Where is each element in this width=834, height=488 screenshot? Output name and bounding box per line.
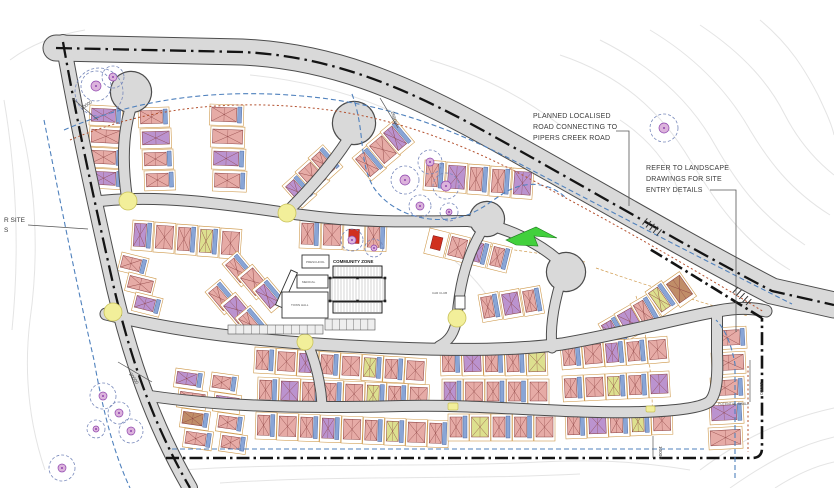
tree	[119, 419, 143, 443]
house-lot	[648, 371, 670, 398]
house-lot	[321, 221, 343, 250]
house-lot	[197, 226, 220, 257]
house-lot	[215, 412, 244, 435]
annotation-planned-road-line-1: PLANNED LOCALISED	[533, 113, 611, 120]
garage-slab	[272, 380, 277, 401]
tree-center-dot	[95, 85, 97, 87]
garage-slab	[313, 417, 318, 439]
house-lot	[708, 426, 743, 450]
site-plan: PLANNED LOCALISED ROAD CONNECTING TO PIP…	[0, 0, 834, 488]
tree-center-dot	[130, 430, 132, 432]
site-plan-map: PLANNED LOCALISED ROAD CONNECTING TO PIP…	[0, 0, 834, 488]
garage-slab	[506, 416, 510, 438]
column-dot	[329, 300, 332, 303]
traffic-calming-circle	[278, 204, 296, 222]
house-lot	[340, 353, 362, 380]
garage-slab	[520, 351, 525, 372]
house-lot	[489, 166, 512, 197]
crossing-tick	[733, 287, 738, 293]
house-lot	[131, 220, 154, 251]
garage-slab	[335, 418, 340, 440]
house-lot	[384, 418, 406, 446]
tree-center-dot	[429, 161, 431, 163]
left-edge-text-line-1: R SITE	[4, 217, 26, 224]
house-lot	[209, 372, 238, 395]
house-lot	[478, 292, 503, 323]
house-lot	[513, 414, 534, 441]
community-centre-main	[330, 278, 385, 301]
tree-center-dot	[61, 467, 63, 469]
garage-slab	[442, 423, 447, 445]
annotation-landscape-line-1: REFER TO LANDSCAPE	[646, 165, 729, 172]
tree	[49, 455, 75, 481]
traffic-calming-circle	[448, 309, 466, 327]
house-lot	[209, 104, 244, 126]
tree-center-dot	[419, 205, 421, 207]
house-lot	[361, 355, 383, 382]
house-lot	[277, 413, 299, 441]
tree-center-dot	[351, 239, 353, 241]
house-lot	[646, 336, 669, 364]
house-lot	[511, 168, 534, 199]
building-label-medical: MEDICAL	[302, 280, 316, 284]
tree-center-dot	[118, 412, 120, 414]
house-lot	[448, 414, 469, 441]
garage-slab	[169, 172, 174, 187]
annotation-planned-road: PLANNED LOCALISED ROAD CONNECTING TO PIP…	[533, 113, 618, 142]
tree	[650, 114, 678, 142]
contour-line	[20, 120, 45, 470]
garage-slab	[237, 107, 242, 123]
garage-slab	[378, 420, 383, 442]
dimension-10000-bottom: 10000	[658, 446, 663, 459]
tree-center-dot	[448, 211, 450, 213]
building-outline	[330, 278, 385, 301]
house-lot	[584, 374, 606, 401]
speed-cushion	[448, 403, 458, 410]
annotation-landscape-line-3: ENTRY DETAILS	[646, 187, 703, 194]
garage-slab	[398, 359, 403, 380]
speed-cushion	[646, 406, 655, 412]
tree-center-dot	[373, 247, 375, 249]
car-club-building	[455, 296, 465, 309]
garage-slab	[399, 421, 404, 443]
traffic-calming-circle	[104, 303, 122, 321]
tree-center-dot	[112, 76, 114, 78]
house-lot	[179, 408, 210, 431]
house-lot	[341, 416, 363, 444]
house-lot	[153, 222, 176, 253]
garage-slab	[740, 328, 745, 345]
contour-line	[4, 100, 16, 330]
contour-line	[700, 25, 834, 175]
contour-line	[760, 20, 834, 135]
culdesac-circle	[547, 253, 585, 291]
tree-center-dot	[445, 185, 447, 187]
garage-slab	[270, 415, 275, 437]
parking-strip	[325, 319, 375, 330]
house-lot	[605, 373, 627, 400]
house-lot	[625, 338, 648, 366]
house-lot	[275, 349, 297, 376]
garage-slab	[314, 223, 319, 246]
culdesac-circle	[333, 102, 375, 144]
house-lot	[467, 164, 490, 195]
garage-slab	[738, 378, 743, 395]
column-dot	[384, 300, 387, 303]
house-lot	[528, 379, 549, 405]
house-lot	[603, 339, 626, 367]
house-lot	[131, 292, 163, 317]
building-label-preschool: PRESCHOOL	[306, 260, 325, 264]
tree	[409, 195, 431, 217]
garage-slab	[269, 350, 274, 371]
building-label-town-hall: TOWN HALL	[291, 303, 309, 307]
house-lot	[520, 286, 545, 317]
house-lot	[491, 414, 512, 441]
annotation-left-edge: R SITE S	[4, 217, 26, 234]
house-lot	[254, 347, 276, 374]
garage-slab	[620, 375, 625, 396]
annotation-landscape-line-2: DRAWINGS FOR SITE	[646, 176, 722, 183]
tree-center-dot	[663, 127, 665, 129]
garage-slab	[463, 416, 467, 438]
house-lot	[363, 417, 385, 445]
leader-line	[28, 225, 88, 229]
house-lot	[144, 170, 176, 191]
house-lot	[298, 414, 320, 442]
garage-slab	[528, 416, 532, 438]
community-centre-wing	[333, 266, 382, 277]
house-lot	[406, 419, 428, 447]
tree	[81, 71, 111, 101]
dimension-10000-right: 10000	[759, 382, 764, 395]
house-lot	[173, 368, 204, 391]
garage-slab	[457, 381, 461, 402]
house-lot	[320, 415, 342, 443]
garage-slab	[500, 381, 504, 402]
map-layers	[4, 20, 834, 488]
house-lot	[210, 126, 245, 148]
house-lot	[212, 170, 247, 192]
house-lot	[299, 220, 321, 249]
house-lot	[175, 224, 198, 255]
house-lot	[211, 148, 246, 170]
house-lot	[427, 420, 449, 448]
tree-center-dot	[102, 395, 104, 397]
annotation-planned-road-line-2: ROAD CONNECTING TO	[533, 124, 618, 131]
garage-slab	[333, 354, 338, 375]
car-park	[228, 325, 323, 334]
garage-slab	[163, 109, 168, 124]
contour-line	[220, 474, 580, 483]
building-outline	[333, 266, 382, 277]
house-lot	[534, 414, 555, 441]
garage-slab	[577, 377, 582, 398]
column-dot	[356, 300, 359, 303]
house-lot	[499, 289, 524, 320]
house-lot	[404, 358, 426, 385]
house-lot	[487, 243, 513, 273]
house-lot	[627, 372, 649, 399]
contour-line	[180, 461, 690, 470]
community-centre-wing	[333, 302, 382, 313]
garage-slab	[380, 226, 385, 249]
tree	[108, 402, 130, 424]
annotation-planned-road-line-3: PIPERS CREEK ROAD	[533, 135, 610, 142]
tree	[391, 166, 419, 194]
culdesac-circle	[470, 202, 504, 236]
tree-center-dot	[95, 428, 97, 430]
tree	[87, 420, 105, 438]
house-lot	[383, 356, 405, 383]
contour-line	[775, 462, 834, 488]
garage-slab	[239, 151, 244, 167]
house-lot	[182, 428, 213, 451]
column-dot	[384, 277, 387, 280]
house-lot	[142, 149, 174, 170]
tree-center-dot	[404, 179, 406, 181]
house-lot	[562, 375, 584, 402]
house-lot	[470, 414, 491, 441]
house-lot	[507, 379, 528, 405]
contour-line	[730, 437, 834, 488]
traffic-calming-circle	[297, 334, 313, 350]
community-zone-label: COMMUNITY ZONE	[333, 259, 373, 264]
garage-slab	[240, 173, 245, 189]
house-lot	[485, 379, 506, 405]
potential-swale-label: POTENTIAL SWALE	[718, 402, 750, 406]
garage-slab	[642, 374, 647, 395]
house-lot	[218, 432, 247, 455]
garage-slab	[376, 357, 381, 378]
house-lot	[89, 126, 123, 148]
building-outline	[333, 302, 382, 313]
left-edge-text-line-2: S	[4, 227, 9, 234]
house-lot	[138, 107, 170, 128]
garage-slab	[337, 383, 342, 404]
column-dot	[329, 277, 332, 280]
house-lot	[140, 128, 172, 149]
crossing-tick	[736, 290, 741, 296]
house-lot	[255, 412, 277, 440]
car-club-label: CAR CLUB	[432, 291, 447, 295]
car-park	[325, 319, 375, 330]
garage-slab	[167, 151, 172, 166]
column-dot	[356, 277, 359, 280]
garage-slab	[522, 381, 526, 402]
traffic-calming-circle	[119, 192, 137, 210]
